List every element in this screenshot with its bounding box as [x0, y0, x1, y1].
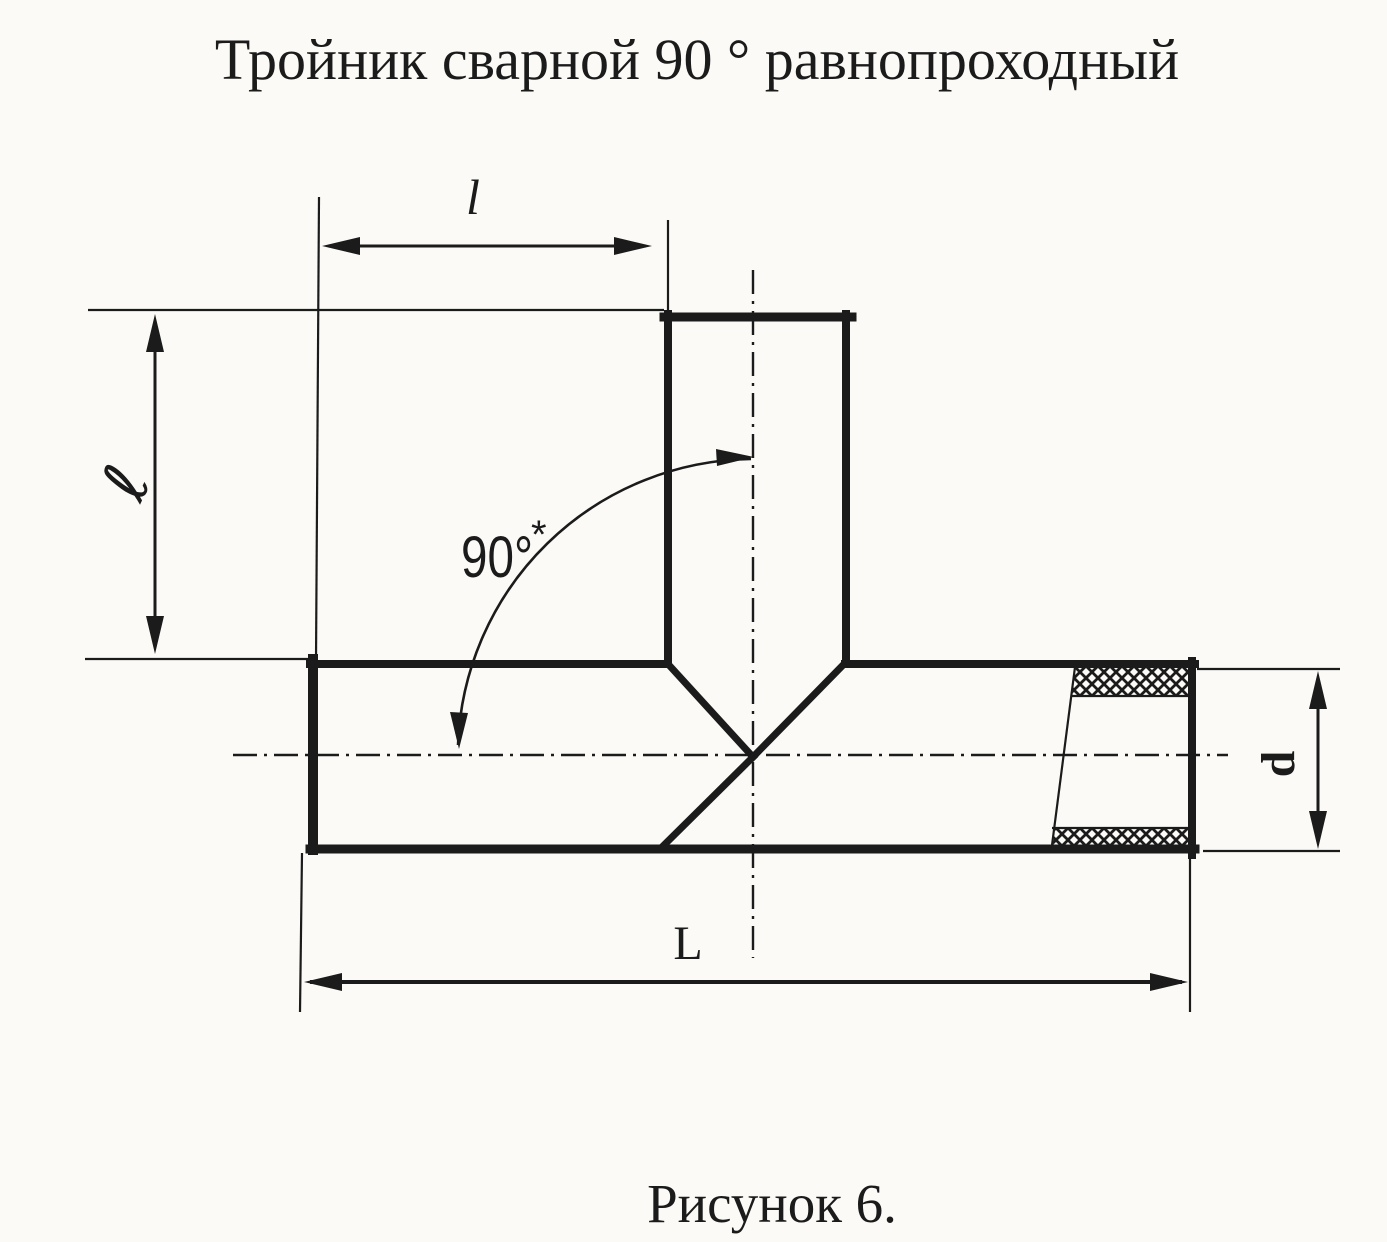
- weld-bevel-upper-right: [753, 662, 846, 757]
- ext-line-L-left: [300, 853, 302, 1012]
- section-hatching: [1051, 667, 1189, 853]
- arrowhead-branch-height-bottom: [146, 616, 164, 654]
- dim-label-diameter: d: [1252, 750, 1305, 777]
- arrowhead-l-right: [614, 237, 652, 255]
- arrowhead-d-top: [1309, 671, 1327, 709]
- angle-label: 90°: [461, 525, 533, 590]
- hatch-band-top-wall: [1071, 668, 1189, 696]
- technical-drawing-tee-weldment: Тройник сварной 90 ° равнопроходный: [0, 0, 1387, 1242]
- arrowhead-angle-top: [716, 449, 754, 466]
- section-break-slant-line: [1051, 667, 1075, 853]
- figure-caption: Рисунок 6.: [647, 1173, 897, 1234]
- ext-line-l-left: [316, 197, 319, 660]
- angle-footnote-star: *: [531, 513, 547, 557]
- arrowhead-L-left: [304, 973, 342, 991]
- dim-label-overall-length: L: [673, 917, 702, 970]
- dim-label-branch-offset: l: [466, 169, 480, 225]
- dimension-lines: [146, 237, 1327, 991]
- centerlines: [233, 270, 1228, 958]
- scanned-drawing-page: Тройник сварной 90 ° равнопроходный: [0, 0, 1387, 1242]
- arrowhead-l-left: [322, 237, 360, 255]
- drawing-title: Тройник сварной 90 ° равнопроходный: [215, 27, 1179, 92]
- weld-bevel-upper-left: [668, 664, 753, 757]
- arrowhead-branch-height-top: [146, 314, 164, 352]
- arrowhead-L-right: [1150, 973, 1188, 991]
- weld-bevel-lower-left: [662, 757, 753, 847]
- arrowhead-angle-bottom: [450, 712, 468, 749]
- arrowhead-d-bottom: [1309, 811, 1327, 849]
